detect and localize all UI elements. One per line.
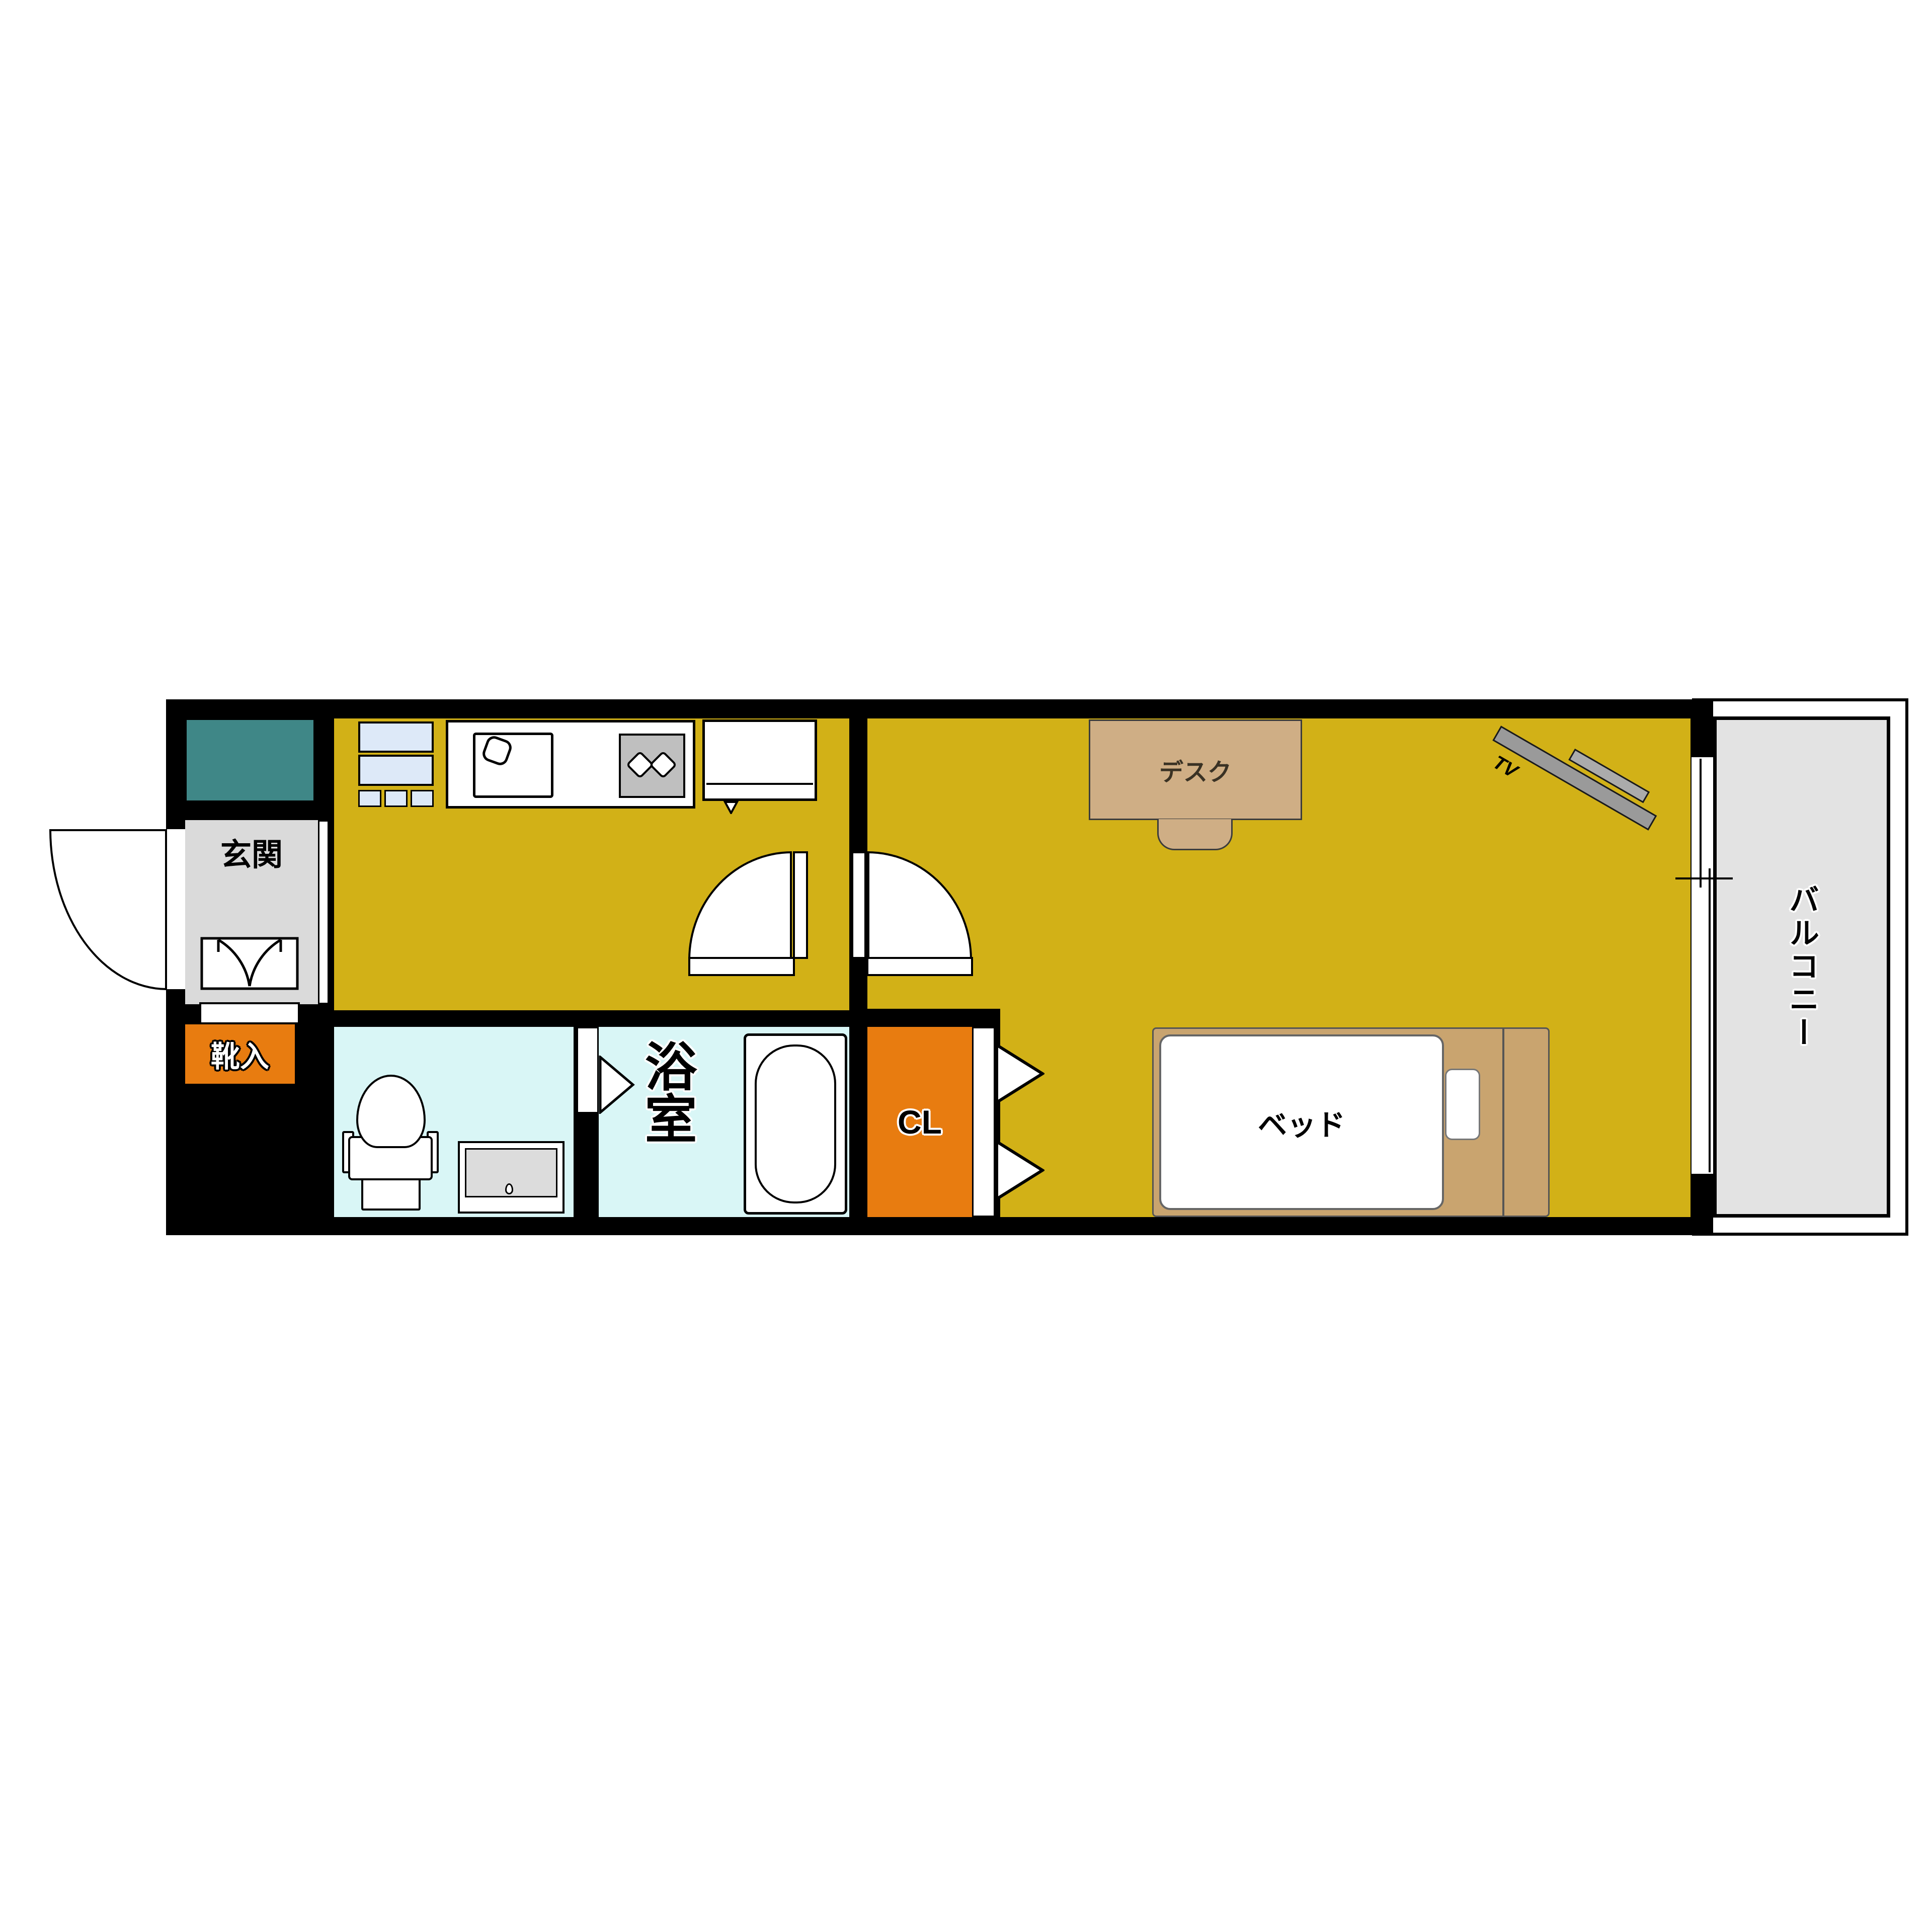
balcony-window-pane-icon [1709,868,1711,1172]
entrance-sill [199,1002,300,1024]
desk-chair-icon [1157,819,1233,850]
bedroom-door-leaf-icon [851,851,866,959]
bed-frame-line [1502,1027,1504,1217]
front-door-swing-icon [49,829,167,990]
washroom-door-sill [688,957,795,976]
balcony-window-pane-icon [1700,759,1702,888]
toilet-tank-icon [361,1176,421,1211]
balcony-window-crossbar-icon [1675,877,1733,879]
kitchen-cabinet-icon [358,721,434,753]
kitchen-drawer-icon [411,790,434,807]
desk-label: デスク [1159,752,1232,787]
shoe-cabinet-label: 靴入 [211,1033,269,1075]
refrigerator-space [702,719,817,801]
entrance-label-wrap: 玄関 [186,830,317,873]
bed-pillow-icon [1445,1069,1480,1140]
balcony-label: バルコニー [1780,884,1824,1050]
balcony: バルコニー [1713,716,1890,1218]
kitchen-sink-icon [473,733,553,798]
closet-label: CL [898,1103,942,1141]
bathroom-folding-door-icon [599,1056,635,1114]
entrance-label: 玄関 [220,829,283,874]
tv-label: TV [1489,752,1521,783]
utility-box [185,718,315,802]
refrigerator-marker-icon [723,801,739,814]
floor-plan: バルコニー 玄関 靴入 [0,0,1932,1932]
double-door-icon [200,937,299,990]
vanity-drain-icon [505,1183,513,1194]
bathtub-inner-icon [755,1044,836,1203]
bed-mattress: ベッド [1159,1034,1444,1210]
shoe-cabinet: 靴入 [185,1024,295,1084]
kitchen-drawer-icon [384,790,408,807]
kitchen-cabinet-icon [358,755,434,786]
closet-folding-door-icon [995,1043,1044,1104]
closet-folding-door-icon [995,1140,1044,1200]
kitchen-drawer-icon [358,790,381,807]
bathroom-door-strip [577,1027,599,1113]
washroom-door-leaf-icon [793,851,808,959]
bedroom-door-sill [866,957,973,976]
entrance-step-strip [318,820,329,1004]
refrigerator-space-line [706,783,813,785]
closet-door-strip [972,1027,995,1217]
bed-label: ベッド [1258,1101,1345,1144]
front-door-gap [167,829,185,989]
closet-room: CL [867,1027,972,1217]
bathroom-label: 浴室 [633,1039,698,1144]
desk: デスク [1089,719,1302,820]
